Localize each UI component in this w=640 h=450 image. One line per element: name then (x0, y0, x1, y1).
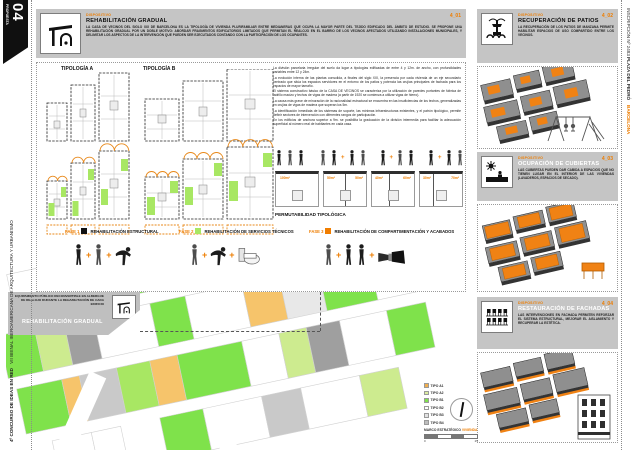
person-icon (343, 243, 354, 267)
patio-square (340, 190, 351, 201)
area-label: 50m² (355, 176, 363, 180)
plus-glyph: + (86, 251, 91, 260)
patios-diagram-panel (477, 66, 618, 149)
plus-glyph: + (229, 251, 234, 260)
legend-swatch (424, 383, 429, 388)
fachadas-axonometric (478, 353, 617, 442)
analysis-paragraph: La evolución interna de las plantas cons… (273, 76, 461, 88)
gradual-rehab-icon (40, 13, 81, 54)
typology-b-label: TIPOLOGÍA B (143, 66, 175, 72)
legend-swatch (424, 406, 429, 411)
house-structure-icon (116, 299, 132, 315)
device-03-code: 4_03 (602, 156, 613, 162)
legend-item: TIPO B4 (424, 419, 482, 426)
fachadas-diagram-panel (477, 352, 618, 443)
person-icon (73, 243, 84, 267)
north-needle (459, 402, 464, 417)
phase-2-swatch (195, 228, 201, 234)
area-label: 100m² (280, 176, 290, 180)
legend-swatch (424, 398, 429, 403)
left-divider (31, 0, 32, 450)
panel-notch-line (320, 292, 321, 331)
person-icon (93, 243, 104, 267)
plus-glyph: + (202, 251, 207, 260)
legend-label: TIPO A2 (431, 391, 444, 395)
person-icon (275, 149, 283, 167)
phase-3-crew: + + (323, 243, 405, 267)
permutability-option-1: 100m² (275, 171, 319, 207)
person-icon (456, 149, 464, 167)
legend-swatch (424, 391, 429, 396)
device-01-kicker: DISPOSITIVO (86, 13, 462, 17)
callout-text: EQUIPAMIENTO PÚBLICO RECONVERTIBLE EN AL… (12, 295, 104, 307)
device-04-kicker: DISPOSITIVO (518, 301, 614, 305)
device-01-body: LA CASA DE VECINOS DEL SIGLO XIX DE BARC… (86, 25, 462, 37)
area-label: 70m² (451, 176, 459, 180)
callout-leader-line (140, 331, 320, 332)
phase-3-label: FASE 3 REHABILITACIÓN DE COMPARTIMENTACI… (309, 228, 454, 234)
device-04-code: 4_04 (602, 301, 613, 307)
legend-item: TIPO A1 (424, 382, 482, 389)
person-icon (359, 149, 367, 167)
legend-swatch (424, 420, 429, 425)
area-label: 40m² (375, 176, 383, 180)
device-04-title: RESTAURACIÓN DE FACHADAS (518, 306, 614, 312)
left-caption-rest: VII BIENAL IBEROAMERICANA DE ARQUITECTUR… (9, 220, 14, 364)
person-icon (427, 149, 435, 167)
division-wall (433, 174, 434, 206)
proposal-number: 04 (9, 3, 26, 64)
patios-axonometric (478, 67, 617, 148)
permutability-label: PERMUTABILIDAD TIPOLÓGICA (275, 212, 346, 217)
person-icon (407, 149, 415, 167)
scale-end: 25 (475, 439, 478, 443)
competition-board: PROPUESTA 04 4º CONCURSO DE IDEAS EN RED… (0, 0, 640, 450)
analysis-paragraph: La causa más grave de minoración de la r… (273, 99, 461, 107)
device-03-header: DISPOSITIVO 4_03 OCUPACIÓN DE CUBIERTAS … (477, 152, 618, 201)
phase-2-label: FASE 2 REHABILITACIÓN DE SERVICIOS TÉCNI… (179, 228, 294, 234)
patio-square (388, 190, 399, 201)
phase-2-title: REHABILITACIÓN DE SERVICIOS TÉCNICOS (204, 229, 293, 234)
left-vertical-caption: 4º CONCURSO DE IDEAS EN RED VII BIENAL I… (9, 66, 14, 442)
worker-bent-icon (209, 243, 227, 267)
device-02-body: LA RECUPERACIÓN DE LOS PATIOS DE MANZANA… (518, 25, 614, 37)
phase-3-swatch (325, 228, 331, 234)
legend-item: TIPO A2 (424, 389, 482, 396)
right-divider (621, 0, 622, 450)
device-03-body: LAS CUBIERTAS PUEDEN DAR CABIDA A ESPACI… (518, 168, 614, 180)
analysis-paragraph: La identificación inmediata de los siste… (273, 109, 461, 117)
device-02-header: DISPOSITIVO 4_02 RECUPERACIÓN DE PATIOS … (477, 9, 618, 63)
plus-glyph: + (106, 251, 111, 260)
legend-swatch (424, 413, 429, 418)
fountain-icon (485, 17, 509, 41)
person-icon (356, 243, 367, 267)
facade-balconies-icon (485, 305, 509, 329)
device-04-header: DISPOSITIVO 4_04 RESTAURACIÓN DE FACHADA… (477, 297, 618, 349)
worker-bent-icon (114, 243, 132, 267)
legend-footer-plain: MARCO ESTRATÉGICO (424, 428, 461, 432)
device-04-body: LAS INTERVENCIONES EN FACHADA PERMITEN R… (518, 313, 614, 325)
area-label: 60m² (403, 176, 411, 180)
person-icon (379, 149, 387, 167)
phase-1-title: REHABILITACIÓN ESTRUCTURAL (90, 229, 158, 234)
analysis-paragraph: La división parcelaria irregular del sue… (273, 66, 461, 74)
paintbrush-icon (377, 249, 405, 267)
house-structure-icon (46, 19, 76, 49)
device-01-title: REHABILITACIÓN GRADUAL (86, 18, 462, 24)
typology-a-label: TIPOLOGÍA A (61, 66, 93, 72)
patio-square (292, 190, 303, 201)
area-label: 30m² (423, 176, 431, 180)
device-01-header: DISPOSITIVO 4_01 REHABILITACIÓN GRADUAL … (36, 9, 466, 58)
proposal-banner: PROPUESTA 04 (3, 0, 28, 64)
right-caption-bold: PLAZA DEL PEDRÓ (626, 57, 631, 100)
person-icon (286, 149, 294, 167)
roof-iconbox (481, 156, 513, 188)
cubiertas-diagram-panel (477, 204, 618, 292)
device-02-code: 4_02 (602, 13, 613, 19)
phase-2-crew: + + (189, 243, 261, 267)
legend-footer: MARCO ESTRATÉGICO VIVIENDA (424, 428, 482, 432)
right-caption-accent: BARCELONA (626, 105, 631, 134)
person-icon (330, 149, 338, 167)
sun-roof-icon (485, 160, 509, 184)
scale-start: 0 (424, 439, 426, 443)
household-groups: + + + (275, 149, 464, 167)
north-compass (450, 398, 473, 421)
plus-glyph: + (336, 251, 341, 260)
device-01-code: 4_01 (450, 13, 461, 19)
analysis-paragraph: En los edificios de anchura superior a 9… (273, 118, 461, 126)
device-03-title: OCUPACIÓN DE CUBIERTAS (518, 161, 614, 167)
typology-panel: TIPOLOGÍA A TIPOLOGÍA B (36, 62, 466, 292)
legend-label: TIPO B1 (431, 398, 444, 402)
plus-glyph: + (390, 155, 394, 161)
plus-glyph: + (438, 155, 442, 161)
person-icon (297, 149, 305, 167)
legend-label: TIPO B2 (431, 406, 444, 410)
legend-label: TIPO B4 (431, 421, 444, 425)
device-02-kicker: DISPOSITIVO (518, 13, 614, 17)
patio-fountain-iconbox (481, 13, 513, 45)
legend-label: TIPO A1 (431, 384, 444, 388)
phase-3-name: FASE 3 (309, 229, 323, 234)
device-02-title: RECUPERACIÓN DE PATIOS (518, 18, 614, 24)
device-03-kicker: DISPOSITIVO (518, 156, 614, 160)
legend-label: TIPO B3 (431, 413, 444, 417)
person-icon (189, 243, 200, 267)
permutability-option-4: 30m² 70m² (419, 171, 463, 207)
phase-1-swatch (81, 228, 87, 234)
permutability-option-2: 50m² 50m² (323, 171, 367, 207)
legend-footer-accent: VIVIENDA (462, 428, 478, 432)
plus-glyph: + (369, 251, 374, 260)
typology-floorplans (41, 69, 277, 237)
left-caption-bold: 4º CONCURSO DE IDEAS EN RED (9, 368, 14, 442)
phase-1-crew: + + (73, 243, 132, 267)
person-icon (348, 149, 356, 167)
phase-1-name: FASE 1 (65, 229, 79, 234)
permutability-option-3: 40m² 60m² (371, 171, 415, 207)
facade-iconbox (481, 301, 513, 333)
analysis-paragraph: El sistema constructivo básico de la CAS… (273, 89, 461, 97)
patio-square (436, 190, 447, 201)
facade-elevation-detail (578, 395, 610, 439)
analysis-text: La división parcelaria irregular del sue… (273, 66, 461, 128)
person-icon (319, 149, 327, 167)
person-icon (396, 149, 404, 167)
person-icon (445, 149, 453, 167)
gradual-rehab-icon-small (112, 295, 136, 319)
scale-numbers: 0 25 (424, 439, 478, 443)
plus-glyph: + (341, 155, 345, 161)
right-caption-plain: INSCRIPCIÓN Nº 2483 (626, 8, 631, 56)
person-icon (323, 243, 334, 267)
area-label: 50m² (327, 176, 335, 180)
cubiertas-axonometric (478, 205, 617, 291)
right-vertical-caption: INSCRIPCIÓN Nº 2483 PLAZA DEL PEDRÓ BARC… (626, 8, 631, 308)
toilet-icon (237, 247, 261, 267)
phase-1-label: FASE 1 REHABILITACIÓN ESTRUCTURAL (65, 228, 159, 234)
phase-2-name: FASE 2 (179, 229, 193, 234)
phase-3-title: REHABILITACIÓN DE COMPARTIMENTACIÓN Y AC… (334, 229, 454, 234)
